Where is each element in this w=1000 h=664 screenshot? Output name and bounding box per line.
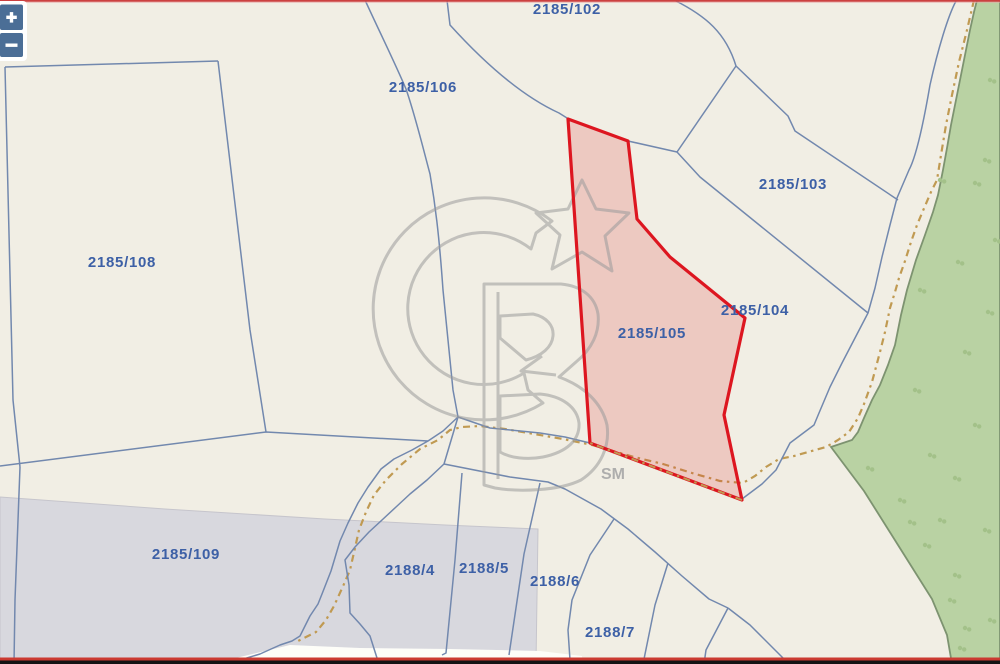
svg-text:2185/108: 2185/108 [88, 254, 156, 271]
svg-text:2185/102: 2185/102 [533, 1, 601, 18]
svg-text:2185/105: 2185/105 [618, 325, 686, 342]
svg-text:2185/109: 2185/109 [152, 546, 220, 563]
svg-text:2188/6: 2188/6 [530, 573, 580, 590]
svg-text:2188/4: 2188/4 [385, 562, 435, 579]
svg-text:2185/104: 2185/104 [721, 302, 789, 319]
svg-text:2185/106: 2185/106 [389, 79, 457, 96]
svg-text:2188/7: 2188/7 [585, 624, 635, 641]
svg-text:2185/103: 2185/103 [759, 176, 827, 193]
svg-text:2188/5: 2188/5 [459, 560, 509, 577]
svg-text:SM: SM [601, 466, 625, 483]
